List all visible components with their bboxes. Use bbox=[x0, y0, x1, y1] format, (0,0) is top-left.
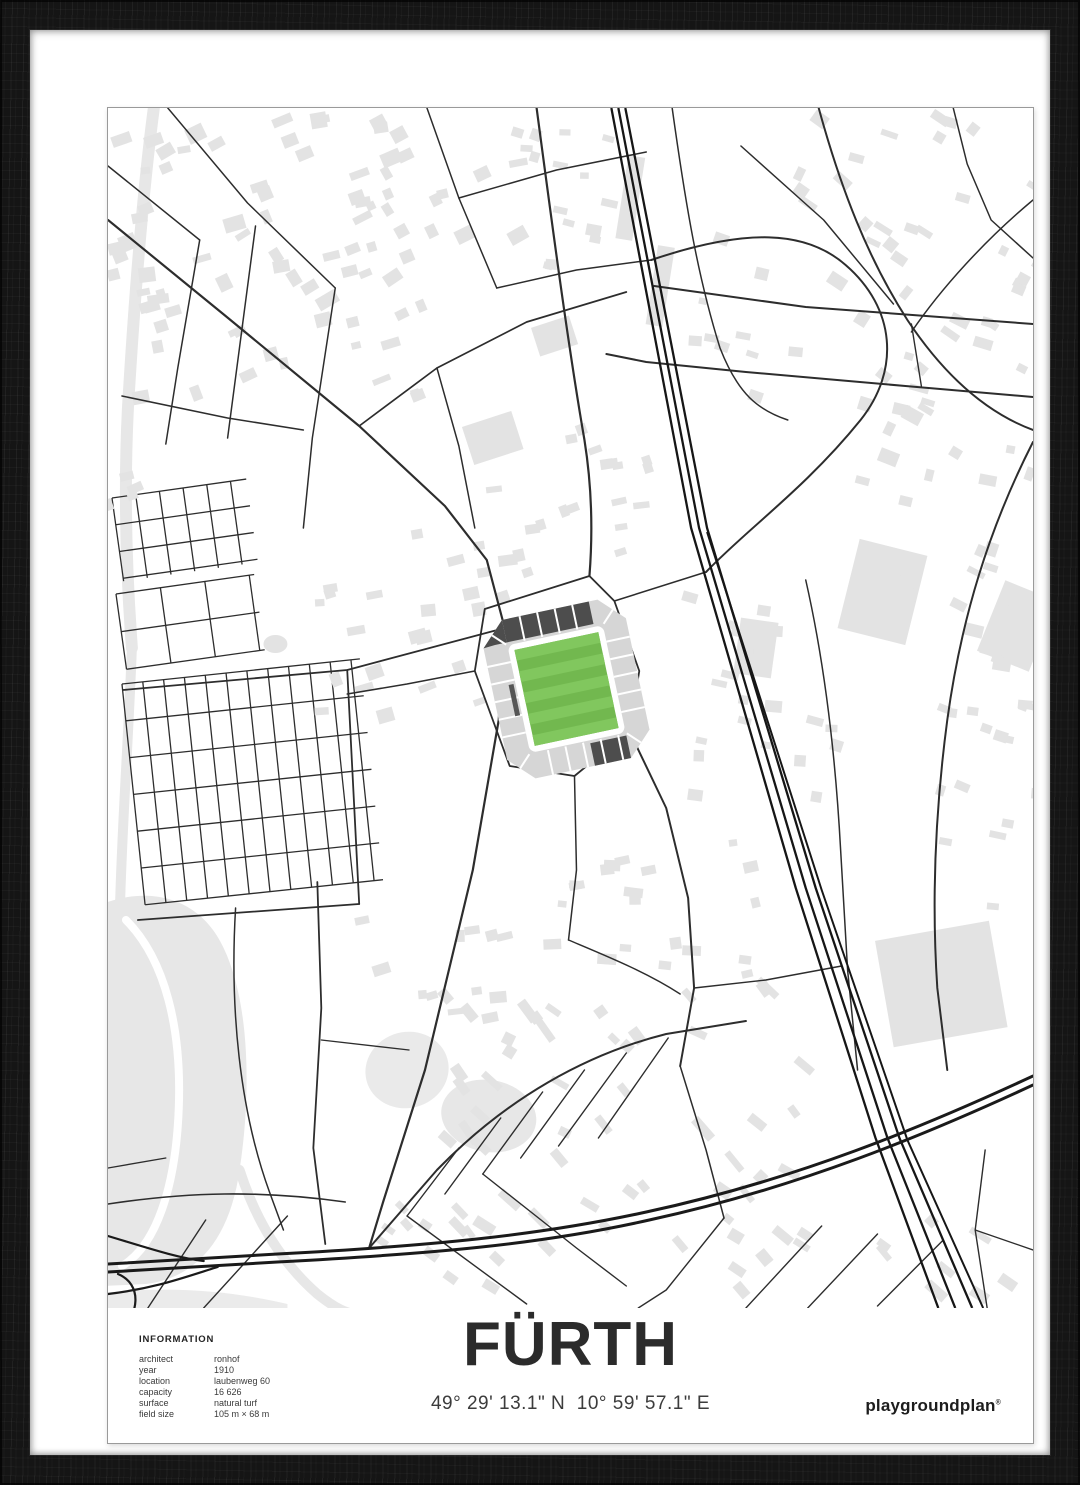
framed-poster: INFORMATION architectronhofyear1910locat… bbox=[0, 0, 1080, 1485]
info-label: location bbox=[139, 1376, 214, 1387]
poster-title: FÜRTH bbox=[108, 1314, 1033, 1376]
registered-mark: ® bbox=[996, 1399, 1001, 1406]
brand-name: playgroundplan bbox=[865, 1396, 995, 1415]
info-row: locationlaubenweg 60 bbox=[139, 1376, 270, 1387]
green-area bbox=[263, 635, 287, 653]
map-wrap bbox=[108, 108, 1033, 1308]
info-value: laubenweg 60 bbox=[214, 1376, 270, 1386]
poster: INFORMATION architectronhofyear1910locat… bbox=[107, 107, 1034, 1444]
brand-logo: playgroundplan® bbox=[865, 1396, 1001, 1416]
mat-board: INFORMATION architectronhofyear1910locat… bbox=[30, 30, 1050, 1455]
city-map bbox=[108, 108, 1033, 1308]
poster-footer: INFORMATION architectronhofyear1910locat… bbox=[108, 1308, 1033, 1443]
